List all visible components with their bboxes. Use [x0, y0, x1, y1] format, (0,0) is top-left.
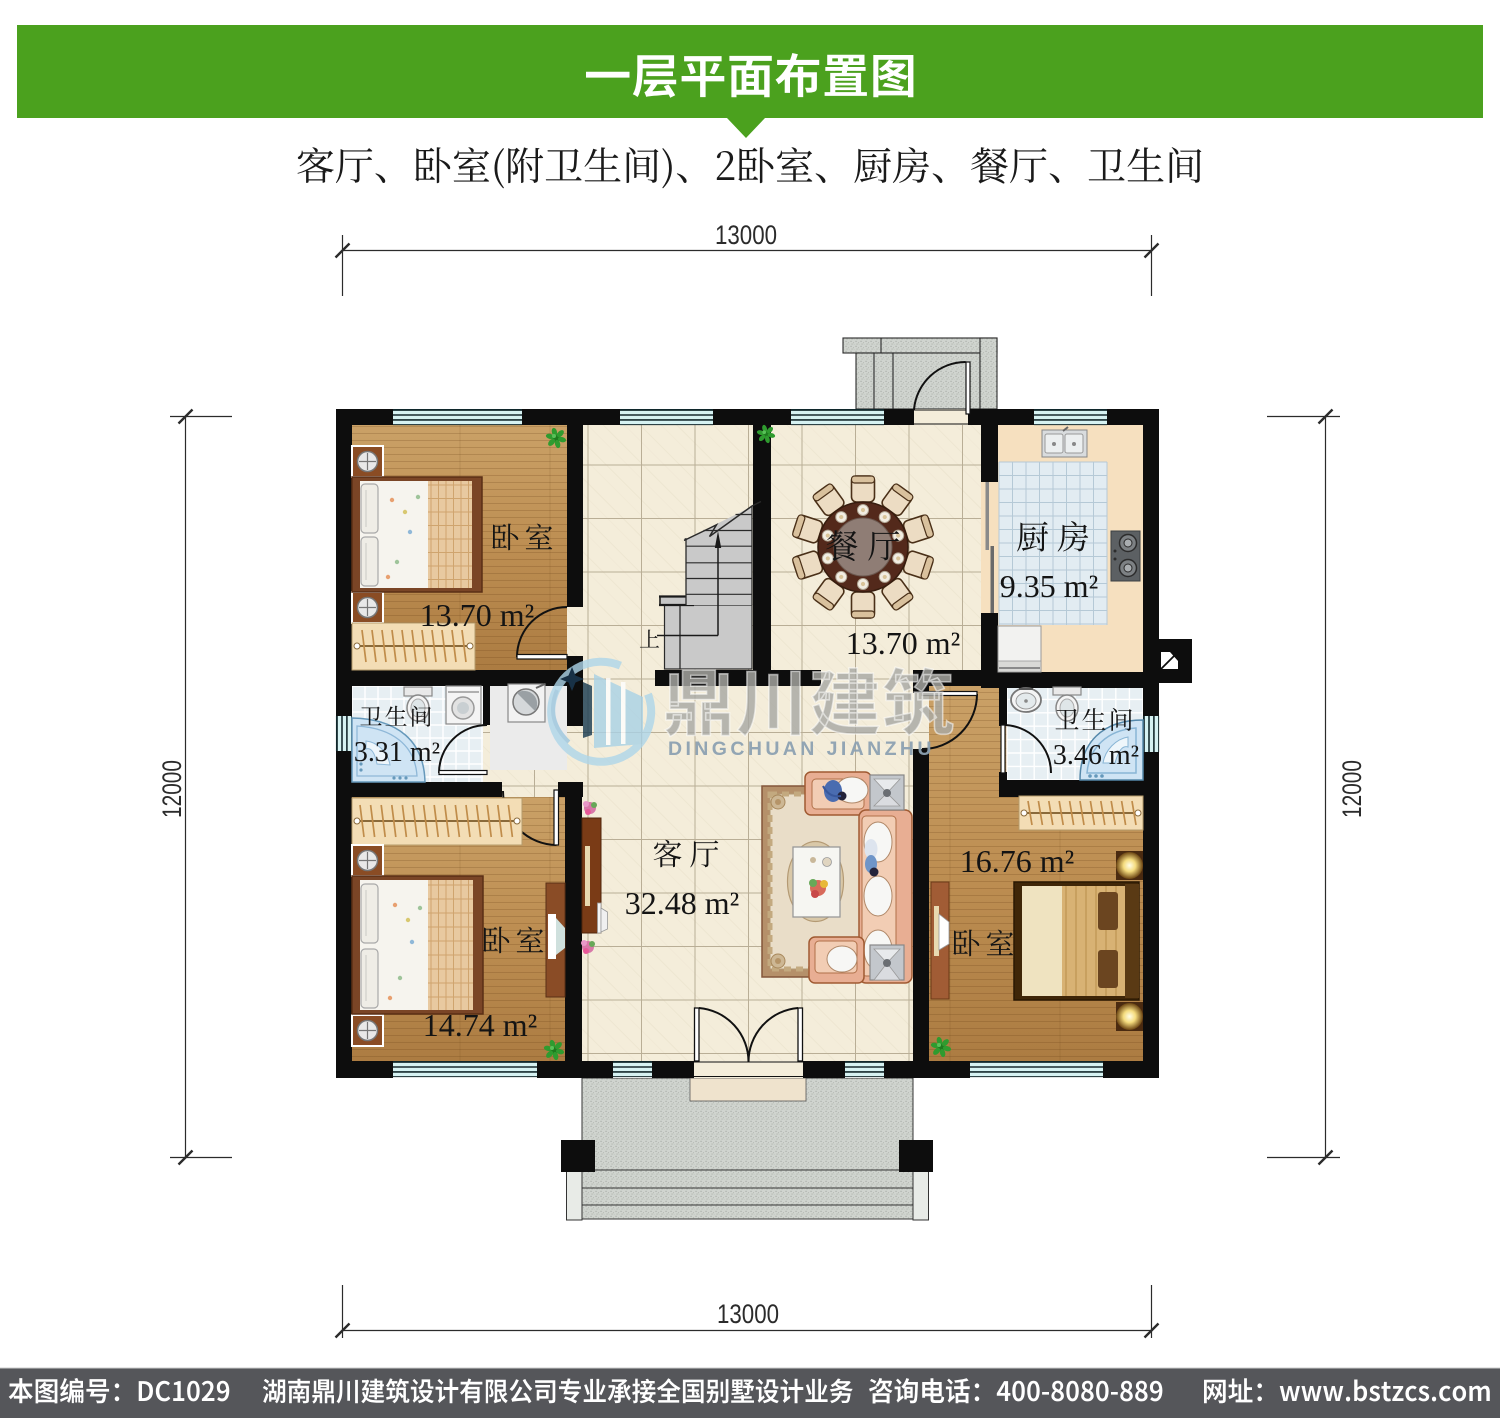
svg-text:13.70 m²: 13.70 m²: [846, 625, 960, 661]
svg-text:13000: 13000: [717, 1299, 779, 1329]
svg-text:13.70 m²: 13.70 m²: [420, 597, 534, 633]
svg-text:12000: 12000: [1337, 760, 1367, 818]
svg-text:3.46 m²: 3.46 m²: [1053, 740, 1139, 771]
svg-text:3.31 m²: 3.31 m²: [354, 737, 440, 768]
svg-text:9.35 m²: 9.35 m²: [1000, 568, 1098, 604]
svg-text:DINGCHUAN JIANZHU: DINGCHUAN JIANZHU: [668, 738, 935, 760]
svg-text:16.76 m²: 16.76 m²: [960, 843, 1074, 879]
svg-text:13000: 13000: [715, 220, 777, 250]
svg-text:14.74 m²: 14.74 m²: [423, 1007, 537, 1043]
svg-text:12000: 12000: [157, 760, 187, 818]
svg-text:32.48 m²: 32.48 m²: [625, 885, 739, 921]
